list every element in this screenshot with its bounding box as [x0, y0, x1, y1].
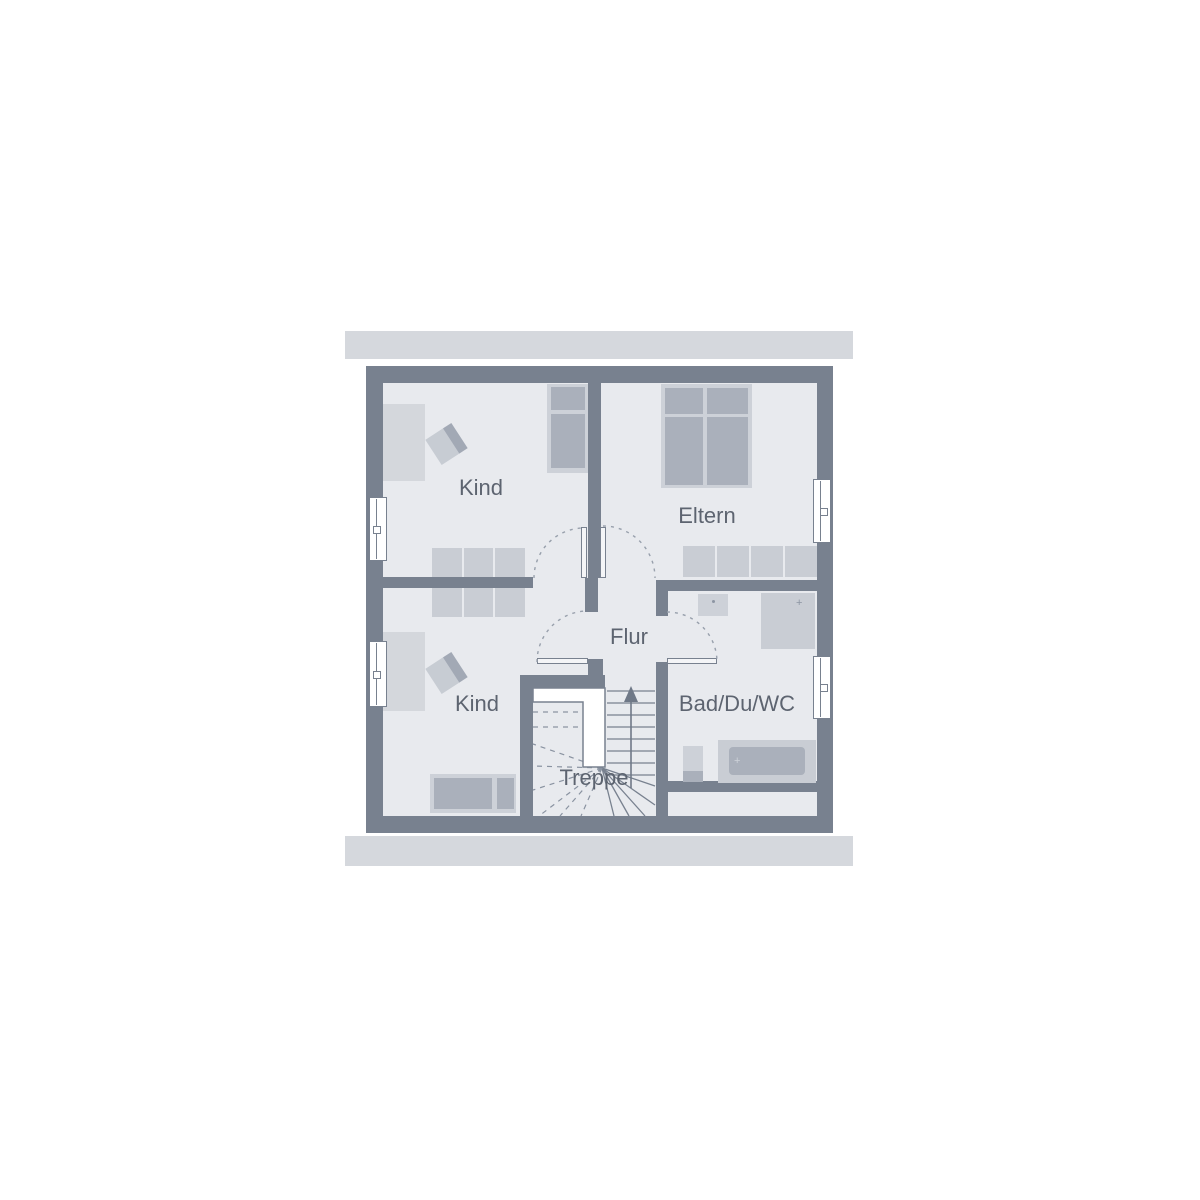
shower-drain-mark: + — [796, 598, 802, 609]
sofa-seat — [434, 778, 492, 809]
sofa-seat — [497, 778, 514, 809]
bathtub-drain-mark: + — [734, 756, 740, 767]
wall-center-stub — [585, 578, 598, 612]
eaves-bar-bottom — [345, 836, 853, 866]
room-label-kind-bottom: Kind — [455, 693, 499, 715]
room-label-flur: Flur — [610, 626, 648, 648]
window-symbol — [813, 479, 831, 543]
wardrobe-section — [432, 588, 464, 617]
room-label-treppe: Treppe — [560, 767, 629, 789]
wardrobe-section — [717, 546, 751, 577]
wardrobe-section — [683, 546, 717, 577]
door-leaf-kind-bottom — [537, 658, 588, 664]
wardrobe-section — [464, 548, 496, 577]
wall-right-horizontal — [656, 580, 817, 591]
bed-mattress — [665, 417, 703, 485]
wall-bad-vertical — [656, 662, 668, 817]
toilet-bowl — [683, 771, 703, 782]
wardrobe-section — [751, 546, 785, 577]
eaves-bar-top — [345, 331, 853, 359]
wardrobe-section — [495, 588, 525, 617]
toilet-tank — [683, 746, 703, 773]
window-symbol — [369, 641, 387, 707]
door-leaf-eltern — [600, 527, 606, 578]
sink — [698, 594, 728, 616]
window-symbol — [369, 497, 387, 561]
bed — [383, 632, 425, 711]
wall-flur-stub — [588, 659, 603, 690]
bed-pillow — [665, 388, 703, 414]
wall-stair-left — [520, 675, 533, 817]
room-label-kind-top: Kind — [459, 477, 503, 499]
bed-pillow — [551, 387, 585, 410]
shower — [761, 593, 815, 649]
wardrobe — [683, 546, 817, 577]
door-leaf-bad — [667, 658, 717, 664]
window-handle — [820, 684, 828, 692]
window-handle — [373, 671, 381, 679]
floor-plan-canvas: { "plan": { "type_note": "upper floor pl… — [0, 0, 1200, 1200]
wall-bad-stub — [656, 580, 668, 616]
room-label-bad: Bad/Du/WC — [679, 693, 795, 715]
wardrobe-section — [785, 546, 817, 577]
bed-pillow — [707, 388, 748, 414]
window-handle — [820, 508, 828, 516]
bed-mattress — [707, 417, 748, 485]
bed — [383, 404, 425, 481]
bed-mattress — [551, 414, 585, 468]
wardrobe — [432, 548, 525, 577]
room-label-eltern: Eltern — [678, 505, 735, 527]
window-handle — [373, 526, 381, 534]
door-leaf-kind-top — [581, 527, 587, 578]
window-symbol — [813, 656, 831, 719]
wall-mid-left — [383, 577, 533, 588]
wardrobe-section — [464, 588, 496, 617]
wardrobe — [432, 588, 525, 617]
wardrobe-section — [495, 548, 525, 577]
sink-drain-dot — [712, 600, 715, 603]
wardrobe-section — [432, 548, 464, 577]
